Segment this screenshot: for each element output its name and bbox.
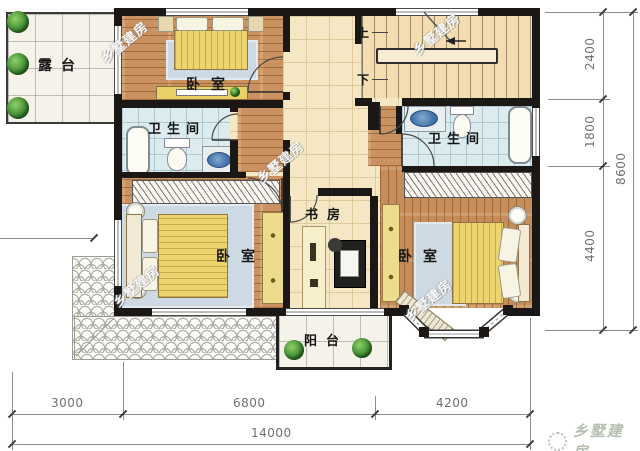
wall [114,8,122,26]
nightstand [158,16,174,32]
dim-line-bottom-inner [12,414,530,415]
sink-basin [410,110,438,127]
wall [402,98,532,106]
wall [246,308,286,316]
wall [402,166,532,172]
window [396,8,478,16]
label-bedroom-right: 卧室 [398,246,448,266]
dim-line-right-outer [633,12,634,330]
dim-extension [545,330,638,331]
wall [230,106,238,112]
wall [283,196,290,308]
wall [370,196,378,308]
wall [122,172,246,178]
floor-plan: 露台 卧室 卫生间 卫生间 书房 卧室 卧室 阳台 上 下 乡墅建房 乡墅建房 … [0,0,640,451]
desk-paper [340,250,359,277]
pillow [176,17,208,31]
brand-text: 乡墅建房 [573,420,640,451]
bathtub [126,126,150,176]
bookcase [302,226,326,312]
wall [283,16,290,52]
bed-right [452,222,504,304]
label-stairs-down: 下 [357,71,369,88]
sink-basin [207,152,231,168]
toilet-bowl [167,147,187,171]
dim-value: 6800 [233,396,266,410]
dim-extension [545,12,638,13]
dim-value: 2400 [583,38,597,70]
wall [114,94,122,220]
bathtub [508,106,532,164]
wardrobe-right-bedroom [404,172,532,198]
wall [532,156,540,316]
roof-bottom [74,316,280,360]
dim-value: 3000 [51,396,84,410]
dim-value: 4400 [583,230,597,262]
wall [532,8,540,108]
dim-line-bottom-outer [12,444,530,445]
wall [508,308,540,316]
window [532,108,540,156]
stair-tick [372,32,388,33]
dim-extension [375,396,376,420]
chair [328,238,342,252]
wall [396,106,402,134]
window [114,220,122,286]
wall [248,8,396,16]
wardrobe-left-bedroom [132,180,280,204]
wall [478,8,540,16]
terrace-plant [7,97,29,119]
dim-line-right-inner [603,12,604,330]
stair-tick [372,79,388,80]
label-bathroom-right: 卫生间 [428,128,485,147]
dim-value: 1800 [583,116,597,148]
label-bathroom-left: 卫生间 [148,118,205,137]
label-stairs-up: 上 [357,24,369,41]
stair-handrail [376,48,498,64]
label-study: 书房 [305,204,349,223]
side-table [508,206,527,225]
pillow [142,219,158,253]
brand-logo: 乡墅建房 [548,420,640,451]
wall [368,102,380,130]
dim-extension [0,238,94,239]
balcony-plant [352,338,372,358]
wall [122,100,283,108]
pillow [212,17,244,31]
dim-value: 4200 [436,396,469,410]
wall [230,140,238,172]
label-terrace: 露台 [38,55,84,75]
wall [283,92,290,100]
label-balcony: 阳台 [304,330,348,349]
dim-value-total: 14000 [251,426,292,440]
terrace-plant [7,11,29,33]
window [166,8,248,16]
dim-tick [90,234,98,242]
terrace-plant [7,53,29,75]
label-bedroom-left: 卧室 [216,246,266,266]
wall [318,188,372,196]
balcony-plant [284,340,304,360]
label-bedroom-top: 卧室 [186,74,236,94]
brand-stamp-icon [548,432,567,451]
dim-extension [530,318,531,450]
window [152,308,246,316]
dim-value-total: 8600 [614,153,628,185]
nightstand [248,16,264,32]
sliding-door [286,308,384,316]
bed-top [174,30,248,70]
